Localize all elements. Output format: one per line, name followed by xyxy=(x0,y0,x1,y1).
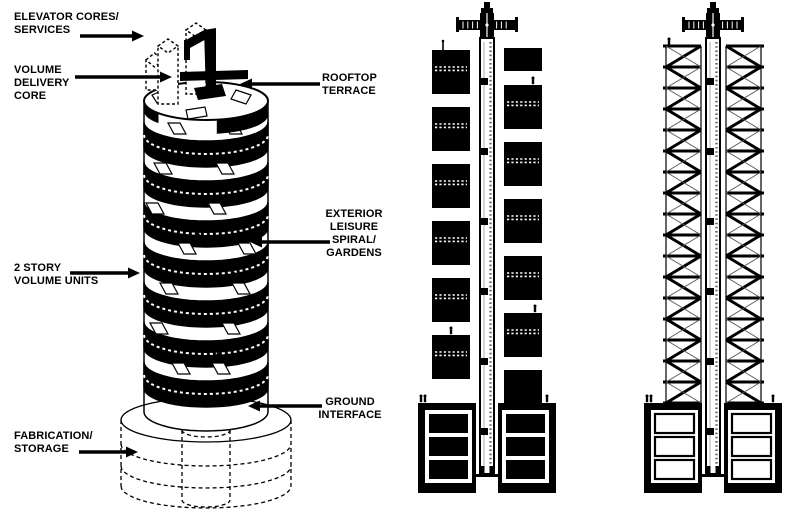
section-frame-figure xyxy=(644,2,782,493)
diagram-canvas xyxy=(0,0,800,511)
label-2-story-volume-units: 2 STORY VOLUME UNITS xyxy=(14,262,98,288)
label-elevator-cores: ELEVATOR CORES/ SERVICES xyxy=(14,11,119,37)
label-volume-delivery-core: VOLUME DELIVERY CORE xyxy=(14,64,69,103)
section-volume-units-figure xyxy=(418,2,556,493)
page: ELEVATOR CORES/ SERVICES VOLUME DELIVERY… xyxy=(0,0,800,511)
label-rooftop-terrace: ROOFTOP TERRACE xyxy=(322,72,377,98)
label-ground-interface: GROUND INTERFACE xyxy=(308,396,392,422)
axonometric-tower-figure xyxy=(121,23,291,508)
label-fabrication-storage: FABRICATION/ STORAGE xyxy=(14,430,93,456)
label-exterior-leisure-spiral: EXTERIOR LEISURE SPIRAL/ GARDENS xyxy=(312,208,396,260)
